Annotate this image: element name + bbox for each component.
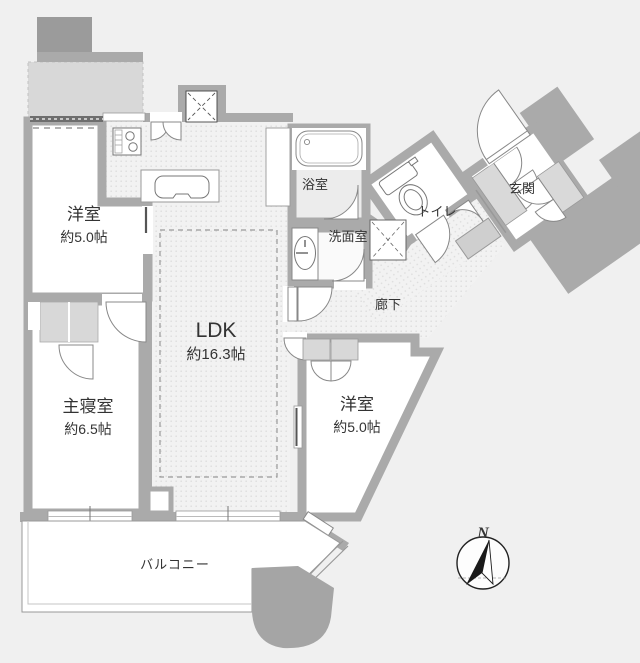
cabinet-column: [266, 128, 290, 206]
floor-plan: N 洋室 約5.0帖 LDK 約16.3帖 主寝室 約6.5帖 洋室 約5.0帖…: [0, 0, 640, 663]
label-hallway: 廊下: [375, 297, 401, 312]
kitchen-counter: [141, 170, 219, 202]
door-leaf: [288, 287, 297, 321]
stove-icon: [113, 128, 141, 155]
sliding-door-gap: [142, 206, 153, 254]
exterior-alcove: [28, 62, 143, 120]
pillar: [148, 489, 171, 513]
label-western-2-size: 約5.0帖: [333, 419, 380, 435]
label-master-bedroom-name: 主寝室: [63, 396, 114, 416]
label-western-1-name: 洋室: [67, 205, 101, 224]
label-entrance: 玄関: [509, 181, 535, 196]
north-label: N: [476, 525, 490, 542]
label-toilet: トイレ: [417, 204, 456, 219]
label-bathroom: 浴室: [302, 177, 328, 192]
bathtub-icon: [296, 131, 362, 166]
label-master-bedroom-size: 約6.5帖: [64, 421, 111, 437]
window: [103, 113, 145, 121]
floor-plan-canvas: N 洋室 約5.0帖 LDK 約16.3帖 主寝室 約6.5帖 洋室 約5.0帖…: [0, 0, 640, 663]
label-ldk-size: 約16.3帖: [186, 346, 245, 363]
wall-top-strip: [37, 52, 143, 62]
washing-machine-space: [370, 220, 406, 260]
label-western-2-name: 洋室: [340, 395, 374, 414]
label-washroom: 洗面室: [328, 229, 367, 244]
label-balcony: バルコニー: [140, 557, 210, 572]
window-western-2: [294, 406, 302, 448]
label-western-1-size: 約5.0帖: [60, 229, 107, 245]
washbasin-icon: [292, 228, 318, 280]
label-ldk-name: LDK: [196, 319, 237, 342]
